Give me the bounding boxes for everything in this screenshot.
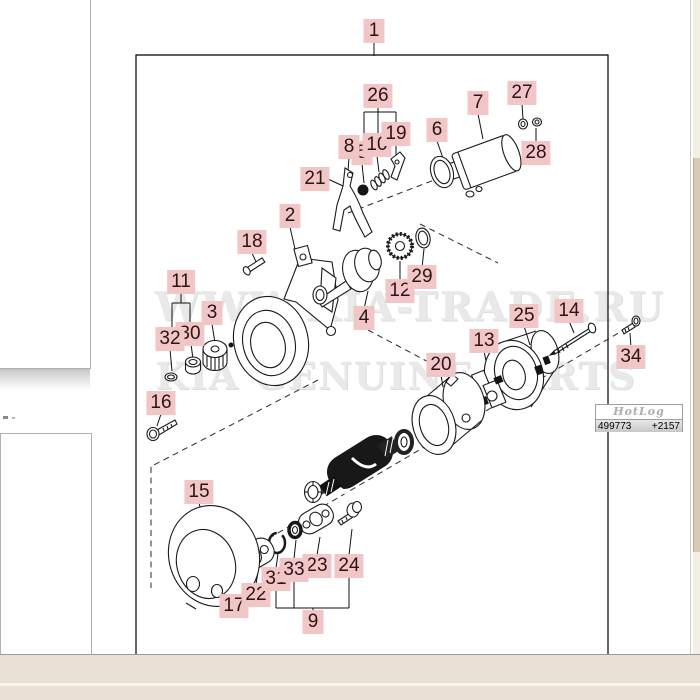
part-bearing-rear-drawing	[396, 431, 412, 453]
part-washer-32-drawing	[165, 373, 177, 381]
part-label-25[interactable]: 25	[509, 304, 538, 328]
part-label-15[interactable]: 15	[184, 480, 213, 504]
part-spring-drawing	[369, 169, 390, 191]
part-gear-12-drawing	[388, 234, 412, 258]
content-right-divider	[690, 0, 691, 654]
part-label-21[interactable]: 21	[300, 167, 329, 191]
part-ring-33-drawing	[289, 523, 301, 538]
part-label-6[interactable]: 6	[427, 118, 448, 142]
parts-catalog-page: WWW.KIA-TRADE.RU KIA GENUINE PARTS	[0, 0, 700, 700]
bottom-strip-lower	[0, 686, 700, 700]
exploded-diagram-drawing	[0, 0, 700, 700]
part-label-32[interactable]: 32	[155, 327, 184, 351]
part-label-19[interactable]: 19	[381, 122, 410, 146]
bottom-strip	[0, 655, 700, 683]
hotlog-counter-widget[interactable]: HotLog 499773 +2157	[595, 404, 683, 432]
part-label-28[interactable]: 28	[521, 141, 550, 165]
part-label-1[interactable]: 1	[364, 19, 385, 43]
part-bolt-24-drawing	[338, 502, 362, 526]
hotlog-today-count: +2157	[652, 421, 680, 432]
scrollbar-thumb[interactable]	[693, 158, 700, 552]
part-label-2[interactable]: 2	[280, 204, 301, 228]
part-label-20[interactable]: 20	[426, 353, 455, 377]
part-label-3[interactable]: 3	[202, 301, 223, 325]
part-label-18[interactable]: 18	[237, 230, 266, 254]
part-ball-drawing	[229, 343, 233, 347]
part-label-24[interactable]: 24	[334, 554, 363, 578]
part-pinion-stop-drawing	[358, 185, 368, 195]
part-nut-drawing	[533, 118, 542, 126]
part-label-7[interactable]: 7	[468, 91, 489, 115]
part-bolt-16-drawing	[147, 420, 177, 441]
part-label-4[interactable]: 4	[354, 306, 375, 330]
part-screw-34-drawing	[622, 316, 640, 334]
part-label-16[interactable]: 16	[146, 391, 175, 415]
part-bearing-front-drawing	[305, 482, 322, 503]
part-ring-29-drawing	[414, 227, 432, 249]
part-label-26[interactable]: 26	[363, 84, 392, 108]
hotlog-logo: HotLog	[596, 405, 682, 419]
part-front-bracket-drawing	[224, 245, 338, 393]
part-washer-drawing	[519, 119, 528, 129]
part-label-33[interactable]: 33	[279, 558, 308, 582]
part-label-14[interactable]: 14	[554, 299, 583, 323]
part-label-9[interactable]: 9	[303, 610, 324, 634]
part-label-34[interactable]: 34	[616, 345, 645, 369]
part-armature-drawing	[315, 438, 396, 496]
part-solenoid-drawing	[445, 132, 525, 197]
part-planet-gear-drawing	[203, 341, 227, 371]
part-label-13[interactable]: 13	[469, 329, 498, 353]
hotlog-visits-count: 499773	[598, 421, 631, 432]
part-label-11[interactable]: 11	[167, 270, 195, 294]
part-label-29[interactable]: 29	[407, 265, 436, 289]
part-lever-pivot-drawing	[391, 152, 405, 180]
part-label-27[interactable]: 27	[507, 81, 536, 105]
part-bushing-drawing	[186, 357, 201, 374]
part-label-8[interactable]: 8	[339, 135, 360, 159]
part-screw-18-drawing	[242, 256, 266, 276]
part-shift-fork-drawing	[333, 168, 372, 237]
